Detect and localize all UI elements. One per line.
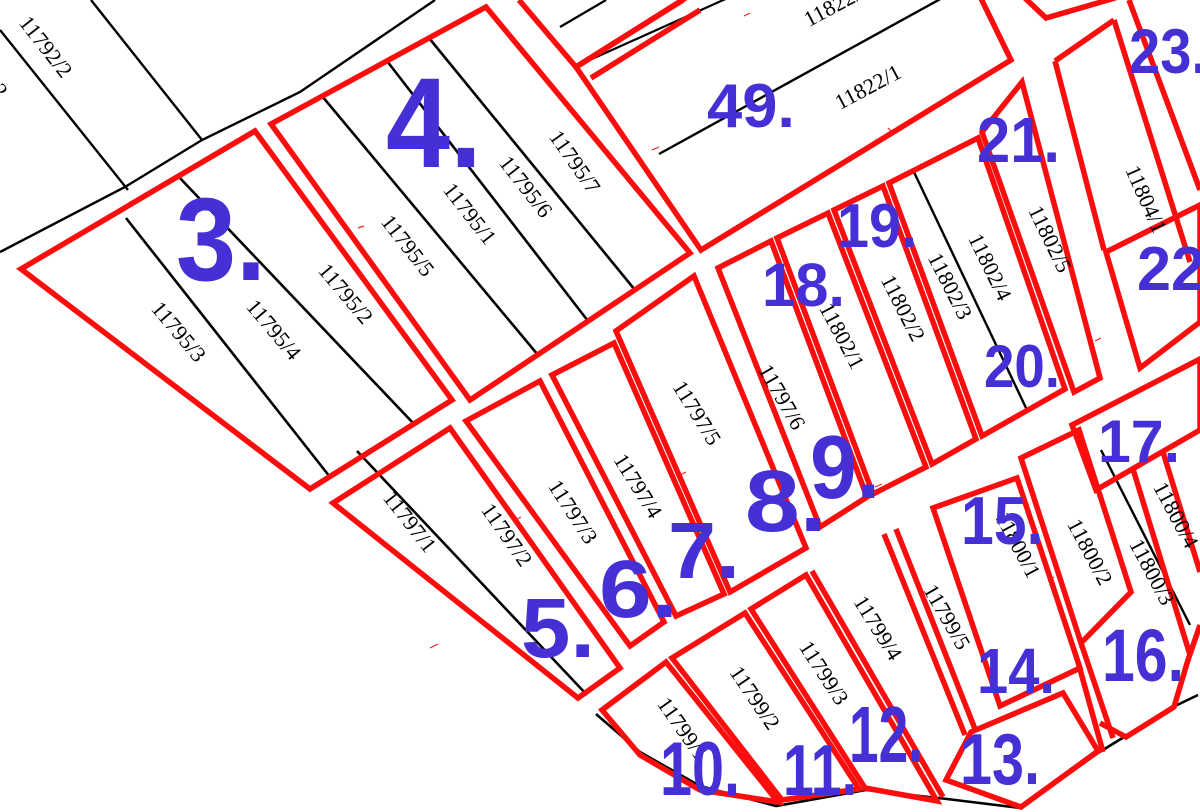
svg-text:22.: 22. — [1137, 235, 1200, 304]
svg-text:16.: 16. — [1102, 614, 1184, 697]
svg-text:18.: 18. — [762, 251, 845, 319]
svg-text:13.: 13. — [960, 720, 1040, 800]
svg-text:14.: 14. — [977, 635, 1055, 707]
svg-text:11.: 11. — [783, 731, 857, 811]
svg-text:17.: 17. — [1098, 408, 1180, 475]
svg-text:15.: 15. — [961, 483, 1043, 559]
svg-text:23.: 23. — [1129, 17, 1200, 87]
svg-text:12.: 12. — [849, 690, 923, 779]
svg-text:20.: 20. — [984, 333, 1060, 400]
svg-text:19.: 19. — [837, 192, 917, 261]
svg-text:7.: 7. — [668, 506, 740, 595]
svg-text:4.: 4. — [386, 52, 482, 195]
svg-text:3.: 3. — [176, 174, 266, 306]
svg-text:49.: 49. — [707, 72, 795, 141]
svg-text:5.: 5. — [521, 581, 595, 675]
svg-text:6.: 6. — [599, 544, 678, 635]
svg-text:10.: 10. — [660, 727, 740, 812]
svg-text:21.: 21. — [977, 104, 1060, 176]
svg-text:9.: 9. — [810, 418, 880, 518]
